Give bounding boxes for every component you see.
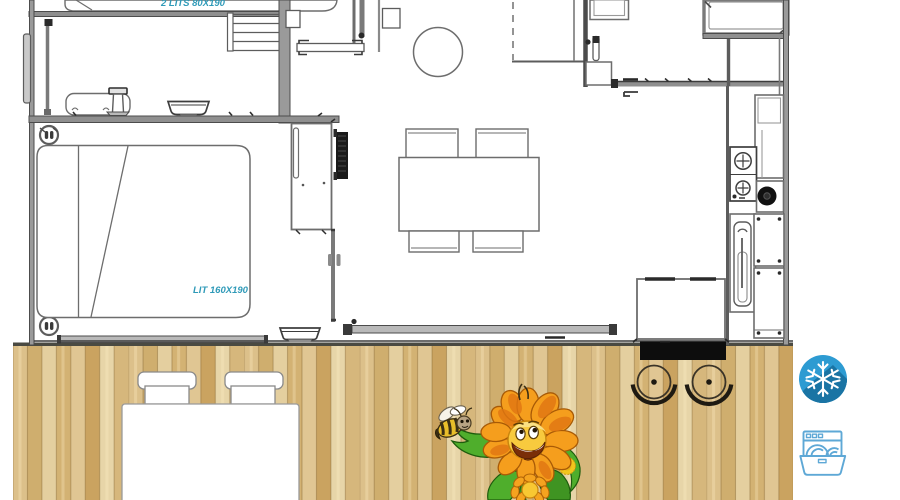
svg-text:LIT 160X190: LIT 160X190	[193, 285, 249, 296]
svg-text:2 LITS 80X190: 2 LITS 80X190	[160, 0, 226, 9]
